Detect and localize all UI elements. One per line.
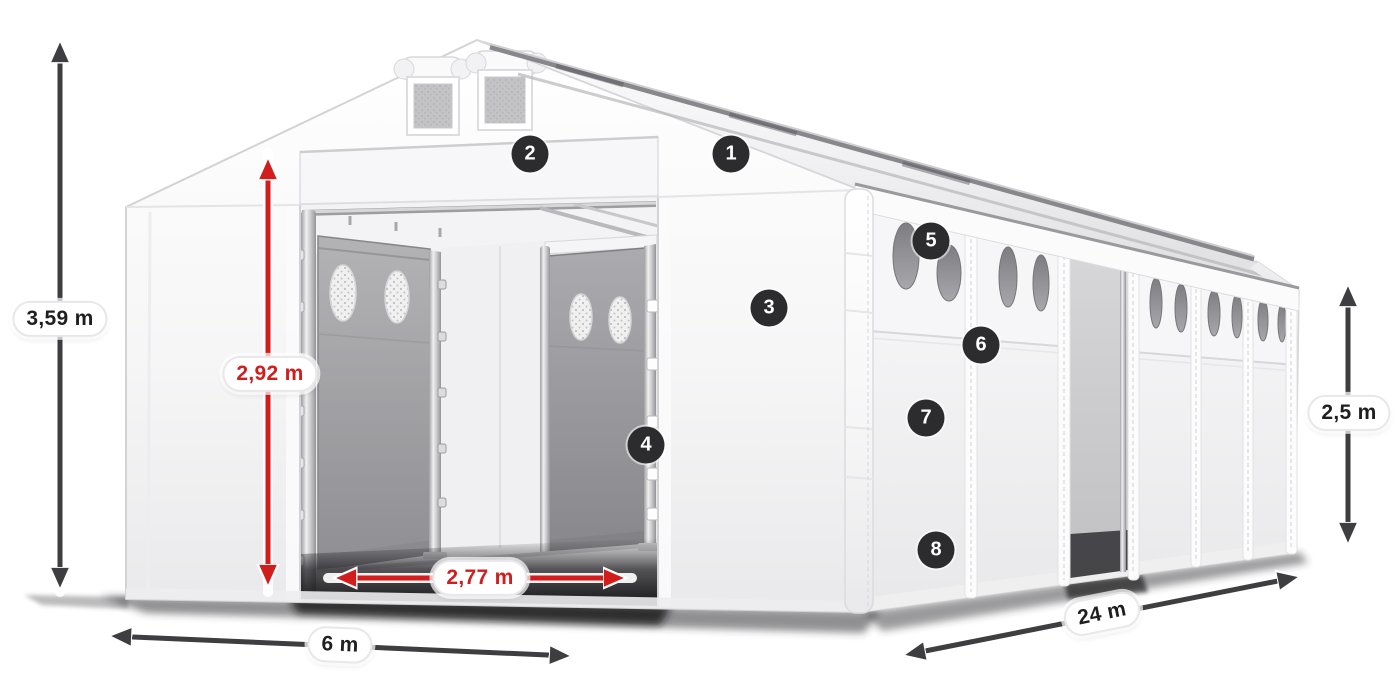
dimension-label-side-wall-height: 2,5 m <box>1307 395 1390 431</box>
dimension-label-total-height: 3,59 m <box>12 301 107 337</box>
door-window-oval <box>330 265 356 321</box>
dimension-label-entrance-height: 2,92 m <box>222 356 317 392</box>
dimension-label-entrance-width: 2,77 m <box>432 560 527 596</box>
side-opening <box>1070 247 1128 578</box>
dimension-label-front-width: 6 m <box>307 626 374 665</box>
callout-3: 3 <box>751 290 788 327</box>
door-window-oval <box>570 294 592 340</box>
sliding-door-panel-inner <box>545 235 657 552</box>
callout-1: 1 <box>713 136 750 173</box>
entrance-frame-pole <box>644 244 656 548</box>
entrance-frame-pole <box>429 250 441 557</box>
callout-8: 8 <box>918 532 955 569</box>
door-window-oval <box>385 271 409 323</box>
entrance-frame-pole <box>540 246 550 554</box>
callout-2: 2 <box>512 136 549 173</box>
callout-6: 6 <box>963 327 1000 364</box>
callout-5: 5 <box>913 223 950 260</box>
callout-7: 7 <box>908 400 945 437</box>
entrance-interior <box>296 196 664 607</box>
callout-4: 4 <box>628 427 665 464</box>
sliding-door-panel-left <box>318 236 431 570</box>
tent-dimension-diagram: 3,59 m 2,92 m 2,77 m 6 m 24 m 2,5 m 1 2 … <box>0 0 1400 700</box>
door-window-oval <box>609 297 631 343</box>
tent-illustration <box>0 0 1400 700</box>
